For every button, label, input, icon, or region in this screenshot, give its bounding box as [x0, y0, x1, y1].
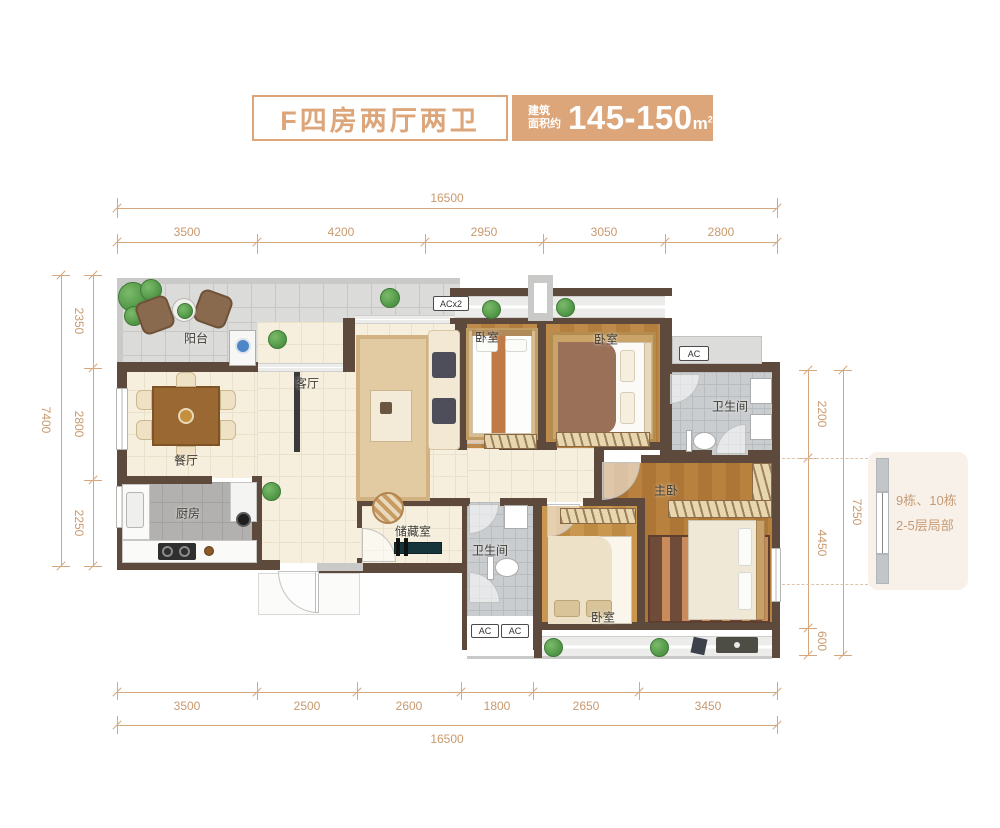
storage-bench — [394, 542, 442, 554]
dim-seg: 1800 — [484, 699, 511, 713]
plant-icon — [268, 330, 287, 349]
stove-burner — [162, 546, 173, 557]
area-label: 建筑 面积约 — [528, 105, 561, 131]
dim-line — [117, 208, 777, 209]
wall-bed-north-sill — [450, 318, 672, 324]
dim-seg: 3450 — [695, 699, 722, 713]
dim-line — [117, 692, 777, 693]
dim-seg: 2200 — [815, 401, 829, 428]
south-bay-sill — [467, 656, 772, 659]
entry-threshold — [317, 563, 363, 571]
dim-tick — [543, 234, 544, 254]
room-label-bed2: 卧室 — [594, 331, 618, 348]
wall-bed1-bed2 — [537, 322, 546, 448]
area-unit: m2 — [693, 114, 713, 134]
dim-tick — [257, 234, 258, 254]
dim-seg: 3500 — [174, 225, 201, 239]
plant-icon — [262, 482, 281, 501]
dim-line — [808, 370, 809, 655]
wall-bed3-top — [583, 498, 645, 506]
wall-bed-north — [450, 288, 672, 296]
dim-total-bottom: 16500 — [430, 732, 463, 746]
bath1-sink — [750, 378, 772, 404]
living-north-window — [355, 315, 460, 324]
sofa-cushion — [432, 398, 456, 424]
note-wall-schematic — [876, 492, 889, 554]
wall-bath1-right — [772, 362, 780, 458]
area-value: 145-150 — [568, 99, 693, 137]
north-niche-inner — [534, 283, 547, 313]
ac-badge-s1: AC — [471, 624, 499, 638]
floorplan-page: F四房两厅两卫 建筑 面积约 145-150 m2 — [0, 0, 1000, 828]
wall-bath2-left — [462, 502, 467, 650]
master-closet — [752, 463, 772, 501]
wall-bay-right — [343, 318, 355, 372]
ac-badge-s2: AC — [501, 624, 529, 638]
bed1-pillow — [505, 339, 527, 352]
bath2-toilet-tank — [487, 556, 494, 580]
dining-centerpiece — [178, 408, 194, 424]
wall-storage-left-a — [357, 502, 362, 528]
room-label-storage: 储藏室 — [395, 523, 431, 540]
plant-icon — [544, 638, 563, 657]
room-label-kitchen: 厨房 — [176, 505, 200, 522]
area-badge: 建筑 面积约 145-150 m2 — [512, 95, 713, 141]
corridor-floor — [467, 448, 600, 502]
bed2-pillow — [620, 392, 635, 424]
bath1-toilet-tank — [686, 430, 692, 452]
dim-seg: 2800 — [708, 225, 735, 239]
sofa-cushion — [432, 352, 456, 378]
dim-seg: 4200 — [328, 225, 355, 239]
dim-total-left: 7400 — [39, 407, 53, 434]
wall-south-corner-e — [772, 622, 780, 658]
kitchen-bowl — [204, 546, 214, 556]
kitchen-sink — [126, 492, 144, 528]
dim-dash-line — [782, 458, 868, 459]
room-label-master: 主卧 — [654, 482, 678, 499]
location-note-text: 9栋、10栋 2-5层局部 — [896, 488, 966, 538]
wall-south-corner-w — [534, 622, 542, 658]
dining-chair — [176, 372, 196, 387]
ac-badge-ne: AC — [679, 346, 709, 361]
wall-master-north — [641, 455, 780, 463]
bed2-wardrobe — [556, 432, 650, 447]
dim-dash-line — [782, 584, 868, 585]
plant-icon — [177, 303, 193, 319]
plant-icon — [380, 288, 400, 308]
bay-tray-dot — [734, 642, 740, 648]
bed2-blanket — [558, 342, 616, 434]
wall-master-right — [772, 458, 780, 628]
dim-tick — [777, 234, 778, 254]
dim-seg: 2500 — [294, 699, 321, 713]
note-line-2: 2-5层局部 — [896, 513, 966, 538]
coffee-table — [370, 390, 412, 442]
bath2-sink — [504, 505, 528, 529]
acx2-badge: ACx2 — [433, 296, 469, 311]
dining-chair — [220, 390, 236, 410]
bath1-sink — [750, 414, 772, 440]
wall-dining-kitchen — [117, 476, 212, 484]
plant-icon — [650, 638, 669, 657]
dim-seg: 600 — [815, 631, 829, 651]
dim-seg: 2250 — [72, 510, 86, 537]
bed3-pillow — [554, 600, 580, 617]
area-label-line2: 面积约 — [528, 118, 561, 131]
dim-line — [117, 725, 777, 726]
stove-burner — [179, 546, 190, 557]
dining-chair — [136, 420, 152, 440]
dining-window — [116, 388, 128, 450]
storage-rack — [396, 538, 400, 556]
master-pillow — [738, 528, 752, 566]
master-window — [771, 548, 781, 602]
room-label-bath1: 卫生间 — [712, 398, 748, 415]
storage-rack — [404, 538, 408, 556]
note-wall-schematic — [876, 554, 889, 584]
bath1-toilet — [693, 432, 716, 450]
dim-line — [843, 370, 844, 655]
room-label-living: 客厅 — [295, 375, 319, 392]
bed2-headboard — [644, 342, 652, 434]
entry-door-leaf — [315, 571, 319, 613]
area-label-line1: 建筑 — [528, 105, 561, 118]
room-label-bed3: 卧室 — [591, 609, 615, 626]
kitchen-wok — [236, 512, 251, 527]
dim-seg: 2600 — [396, 699, 423, 713]
balcony-slider — [258, 363, 343, 372]
note-line-1: 9栋、10栋 — [896, 488, 966, 513]
master-headboard — [756, 520, 765, 620]
floor-stool — [372, 492, 404, 524]
bed3-wardrobe — [560, 508, 636, 524]
master-pillow — [738, 572, 752, 610]
sofa — [428, 330, 460, 450]
dim-line — [93, 275, 94, 566]
washing-machine-drum — [235, 338, 251, 354]
master-wardrobe — [668, 500, 772, 518]
dim-seg: 2950 — [471, 225, 498, 239]
coffee-table-tray — [380, 402, 392, 414]
dim-total-top: 16500 — [430, 191, 463, 205]
wall-bed3-master — [637, 502, 645, 628]
dim-seg: 3050 — [591, 225, 618, 239]
dim-tick — [665, 234, 666, 254]
plan-title: F四房两厅两卫 — [252, 95, 508, 141]
note-wall-schematic — [876, 458, 889, 492]
dim-seg: 2800 — [72, 411, 86, 438]
balcony-parapet-top — [117, 278, 460, 284]
dim-seg: 3500 — [174, 699, 201, 713]
room-label-dining: 餐厅 — [174, 452, 198, 469]
bed2-pillow — [620, 350, 635, 382]
room-label-bed1: 卧室 — [475, 329, 499, 346]
dim-seg: 2350 — [72, 308, 86, 335]
dim-seg: 2650 — [573, 699, 600, 713]
plant-icon — [482, 300, 501, 319]
dim-tick — [117, 234, 118, 254]
bed1-wardrobe — [484, 434, 537, 449]
dining-chair — [220, 420, 236, 440]
bath2-toilet — [495, 558, 519, 577]
dim-tick — [425, 234, 426, 254]
dim-seg: 4450 — [815, 530, 829, 557]
dining-chair — [136, 390, 152, 410]
dim-line — [117, 242, 777, 243]
room-label-balcony: 阳台 — [184, 330, 208, 347]
dim-total-right: 7250 — [850, 499, 864, 526]
room-label-bath2: 卫生间 — [472, 542, 508, 559]
plant-icon — [556, 298, 575, 317]
dim-line — [61, 275, 62, 566]
